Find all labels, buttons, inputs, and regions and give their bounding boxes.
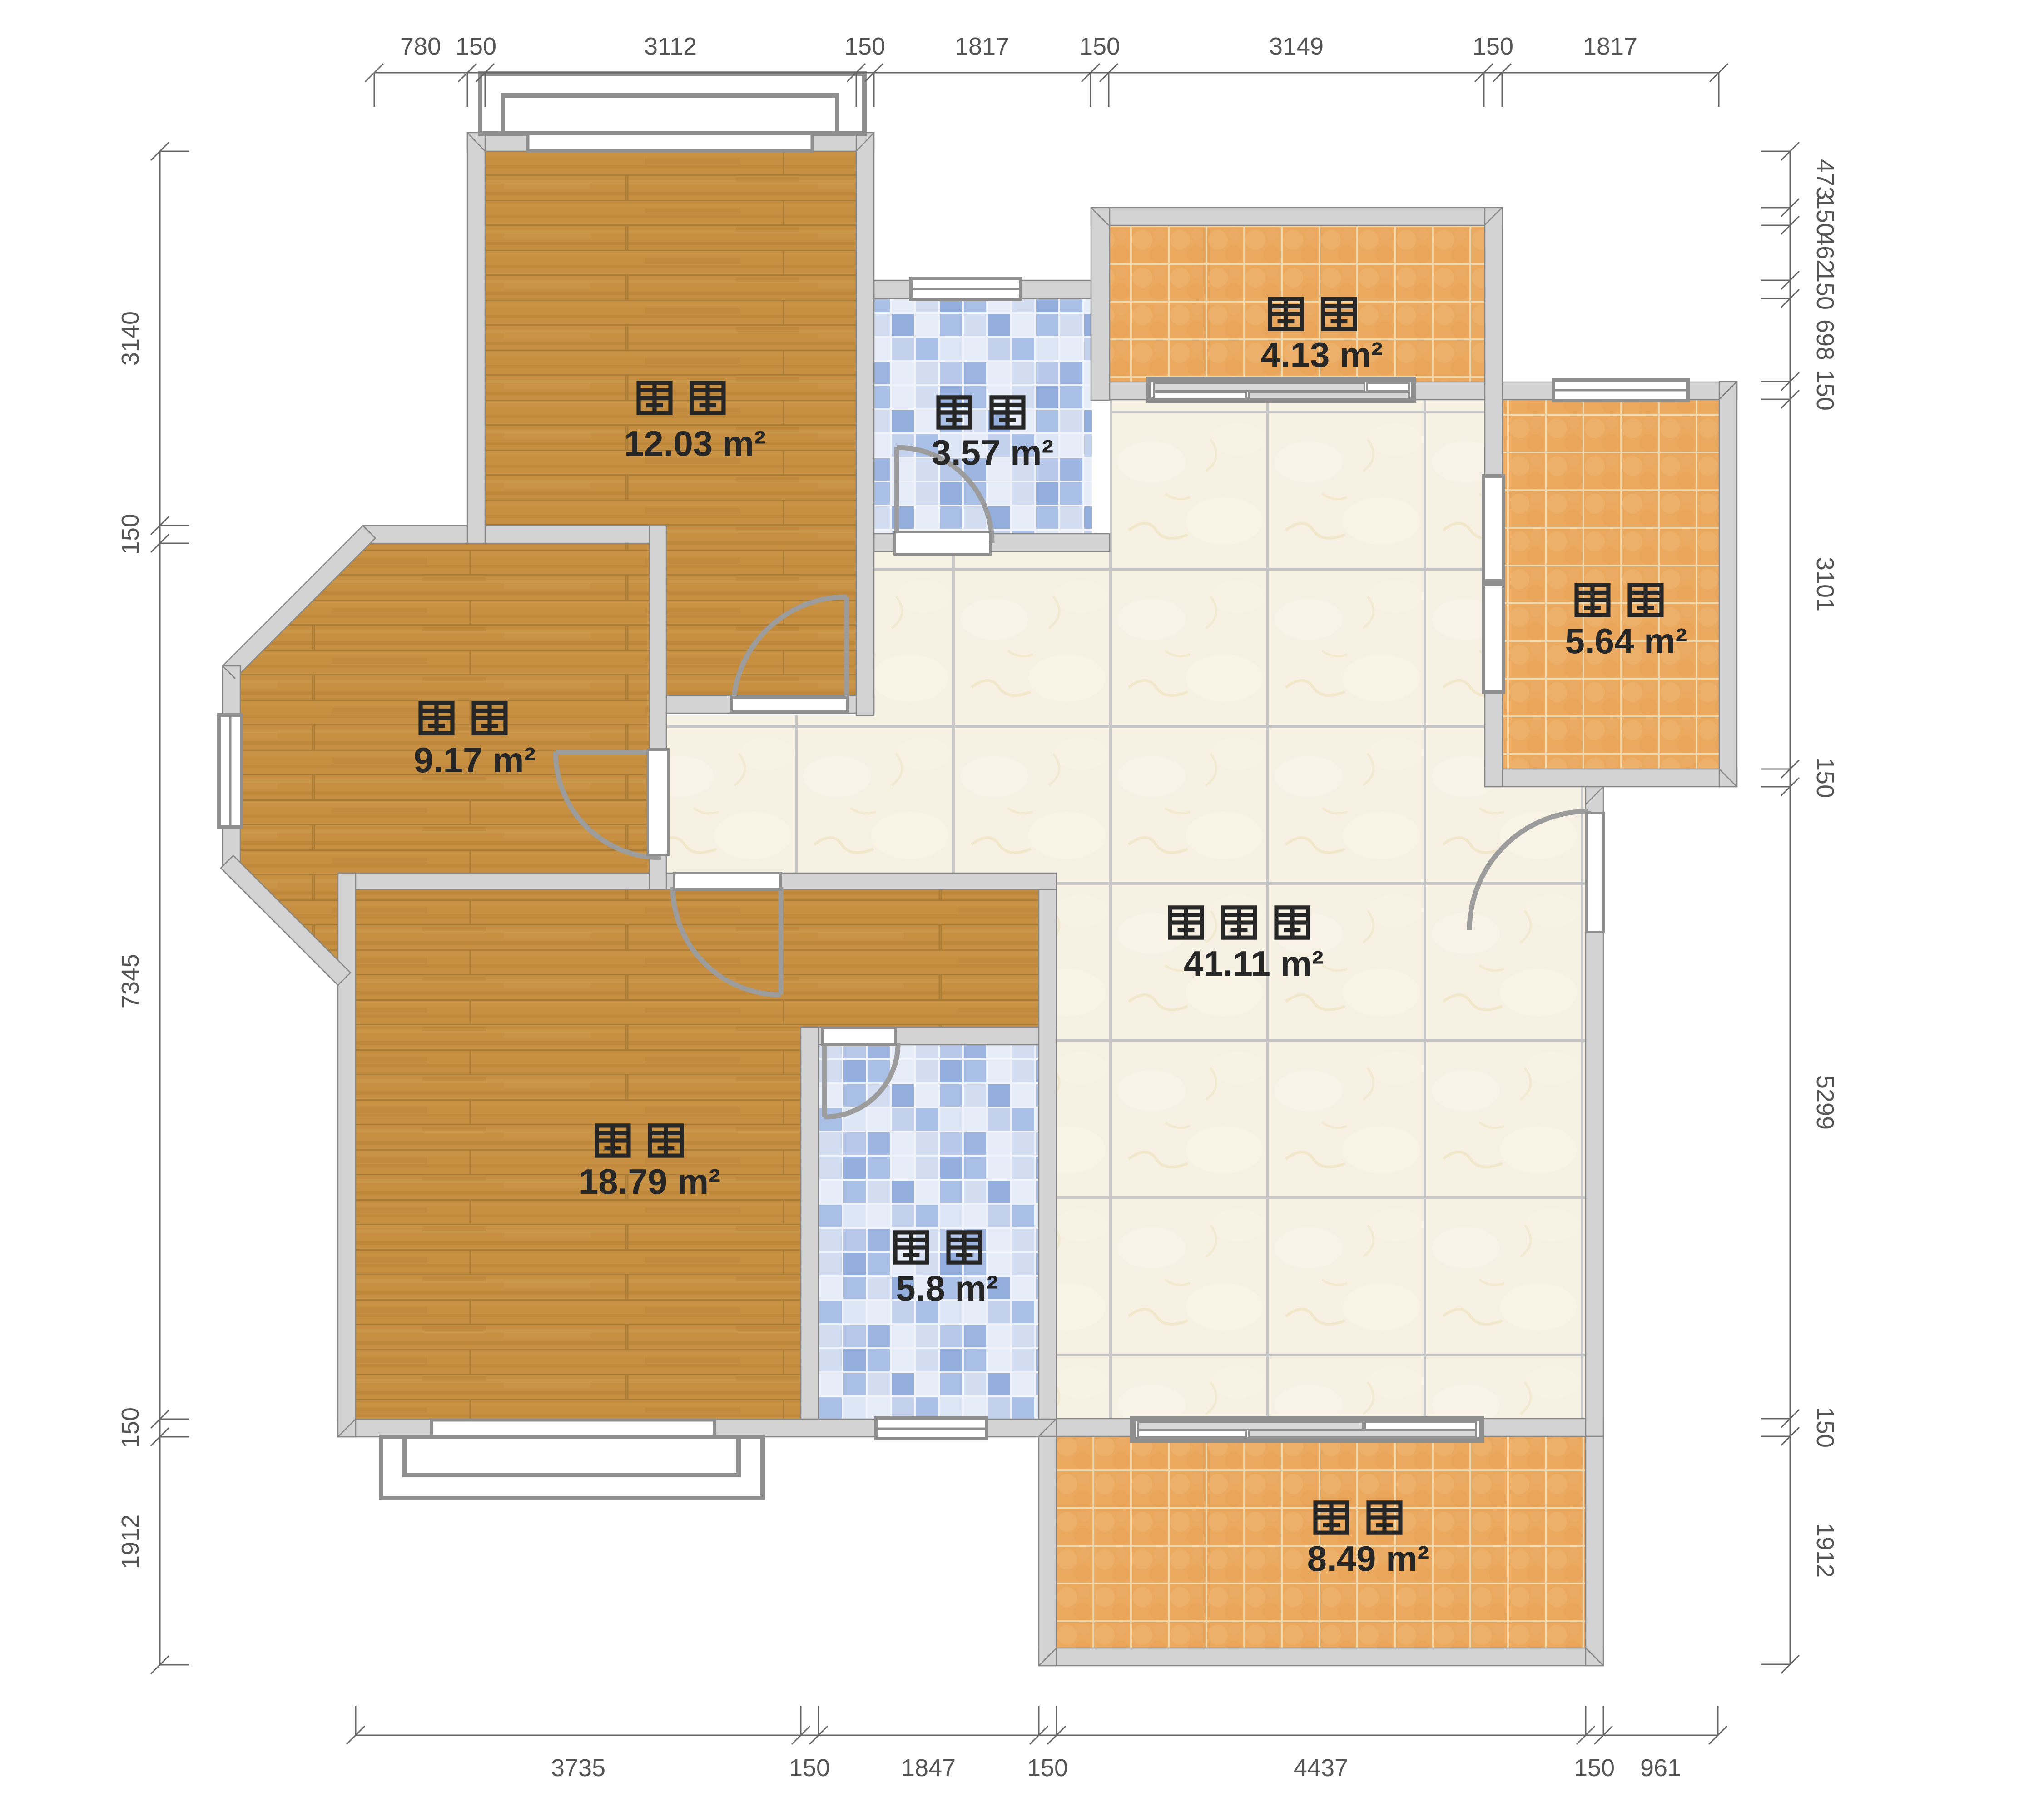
- svg-text:462: 462: [1811, 232, 1839, 273]
- svg-text:1817: 1817: [1583, 33, 1637, 60]
- svg-text:3735: 3735: [551, 1754, 605, 1782]
- svg-text:3149: 3149: [1269, 33, 1324, 60]
- svg-text:150: 150: [117, 1407, 144, 1448]
- svg-text:5299: 5299: [1811, 1075, 1839, 1130]
- svg-text:1912: 1912: [1811, 1523, 1839, 1578]
- svg-text:150: 150: [1574, 1754, 1615, 1782]
- svg-text:150: 150: [1811, 1407, 1839, 1448]
- svg-text:9.17 m²: 9.17 m²: [414, 740, 536, 780]
- svg-text:150: 150: [456, 33, 496, 60]
- svg-text:473: 473: [1811, 159, 1839, 200]
- svg-text:150: 150: [1811, 757, 1839, 798]
- svg-text:150: 150: [1811, 370, 1839, 411]
- svg-text:1847: 1847: [901, 1754, 956, 1782]
- svg-text:41.11 m²: 41.11 m²: [1184, 943, 1324, 983]
- svg-text:150: 150: [1811, 196, 1839, 237]
- svg-text:7345: 7345: [117, 954, 144, 1008]
- svg-text:780: 780: [400, 33, 441, 60]
- svg-text:3101: 3101: [1811, 557, 1839, 611]
- svg-text:8.49 m²: 8.49 m²: [1307, 1539, 1429, 1579]
- svg-text:3112: 3112: [644, 33, 697, 60]
- svg-text:3.57 m²: 3.57 m²: [932, 432, 1054, 472]
- svg-text:4.13 m²: 4.13 m²: [1261, 335, 1383, 375]
- svg-text:150: 150: [1811, 269, 1839, 310]
- svg-text:5.8 m²: 5.8 m²: [896, 1268, 998, 1308]
- svg-text:4437: 4437: [1294, 1754, 1348, 1782]
- svg-text:12.03 m²: 12.03 m²: [624, 423, 766, 463]
- svg-text:1817: 1817: [955, 33, 1009, 60]
- svg-text:150: 150: [789, 1754, 830, 1782]
- svg-text:18.79 m²: 18.79 m²: [579, 1162, 720, 1201]
- svg-text:698: 698: [1811, 319, 1839, 360]
- svg-text:3140: 3140: [117, 311, 144, 366]
- svg-text:150: 150: [1079, 33, 1120, 60]
- svg-text:150: 150: [1027, 1754, 1068, 1782]
- svg-text:150: 150: [117, 514, 144, 555]
- svg-text:150: 150: [1473, 33, 1513, 60]
- svg-text:961: 961: [1640, 1754, 1681, 1782]
- svg-text:150: 150: [844, 33, 885, 60]
- svg-text:5.64 m²: 5.64 m²: [1565, 621, 1687, 661]
- svg-text:1912: 1912: [117, 1514, 144, 1569]
